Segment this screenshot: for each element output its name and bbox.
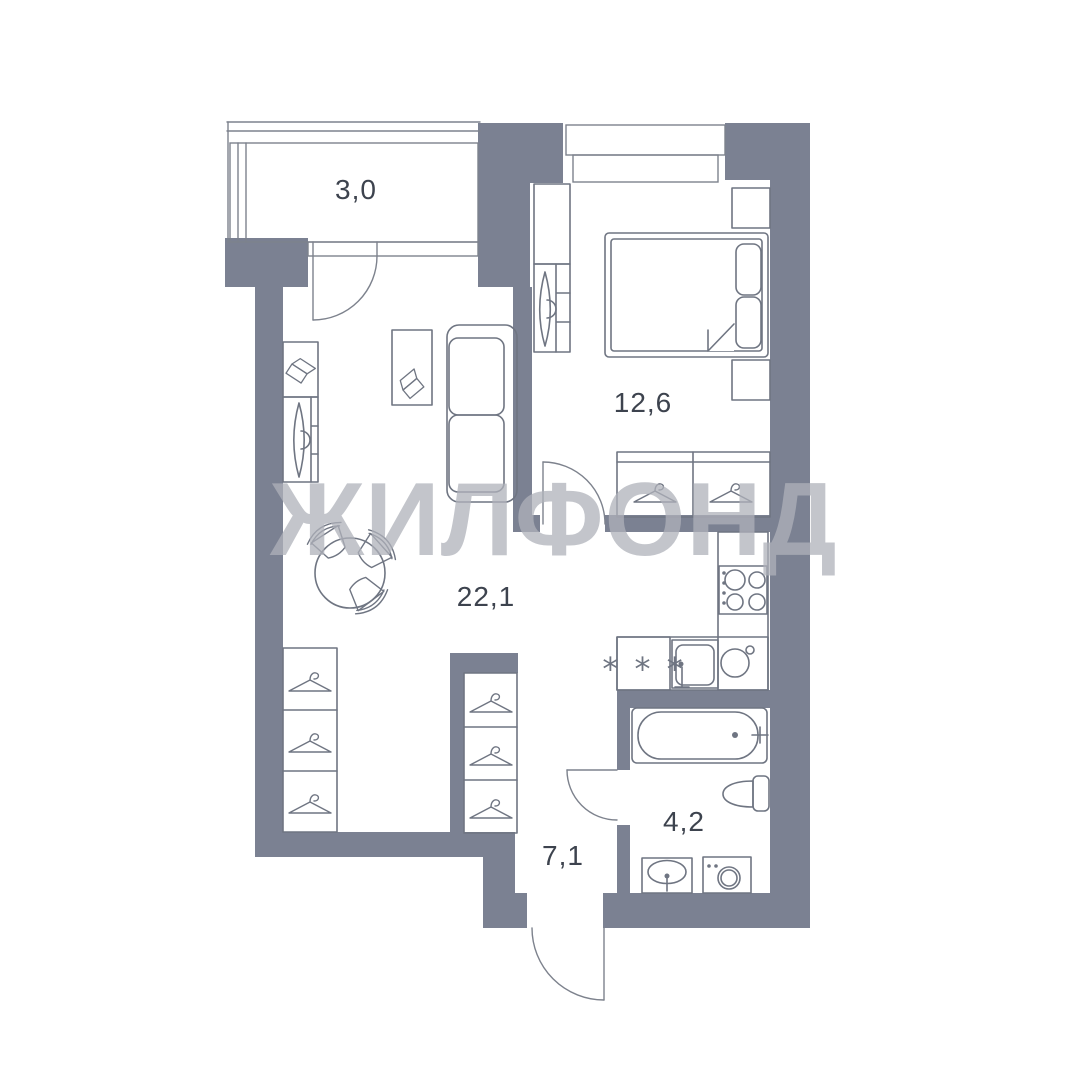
hanger-icon — [710, 484, 752, 502]
living-room-furniture — [283, 325, 517, 833]
hanger-icon — [470, 747, 512, 765]
chair — [350, 525, 400, 576]
wall-entrance-left — [483, 893, 527, 928]
kitchen-counter-right — [718, 532, 768, 690]
burner — [725, 570, 745, 590]
bedroom-area-label: 12,6 — [614, 387, 673, 419]
door-swing-arc — [532, 928, 604, 1000]
bedroom-closet — [617, 452, 770, 517]
tv-icon — [540, 272, 551, 346]
balcony-door — [313, 256, 377, 320]
bedroom-tv-dresser — [534, 264, 570, 352]
hanger-icon — [634, 484, 676, 502]
hanger-icon — [289, 734, 331, 752]
toilet-bowl — [723, 781, 753, 807]
tv-stand — [283, 397, 318, 482]
balcony-threshold — [308, 242, 478, 256]
floor-plan-drawing: * * * — [0, 0, 1080, 1080]
entrance-door — [532, 928, 604, 1000]
living-kitchen-area-label: 22,1 — [457, 581, 516, 613]
bed — [605, 233, 768, 357]
sofa-cushion — [449, 338, 504, 415]
bathtub — [632, 708, 768, 763]
hanger-icon — [470, 694, 512, 712]
bedroom-door — [543, 462, 605, 524]
laptop-icon — [397, 369, 427, 398]
floor-plan: * * * — [0, 0, 1080, 1080]
pillow — [736, 244, 761, 295]
bedroom-wardrobe-left — [534, 184, 570, 264]
fridge-snowflakes: * * * — [602, 650, 685, 688]
bath-faucet — [752, 727, 768, 743]
hanger-icon — [289, 795, 331, 813]
washing-machine — [703, 857, 751, 893]
wall-kitchen-bath-divider — [617, 690, 770, 708]
tv-icon — [294, 403, 305, 477]
toilet — [723, 776, 769, 811]
pillow — [736, 297, 761, 348]
wall-living-bottom — [255, 832, 515, 857]
bathroom-fixtures — [632, 708, 769, 893]
wall-hall-wardrobe-cap — [450, 653, 518, 673]
bathroom-area-label: 4,2 — [663, 806, 705, 838]
hanger-icon — [470, 800, 512, 818]
stove — [719, 566, 767, 614]
dining-set — [304, 517, 400, 619]
bathroom-door — [567, 770, 617, 820]
chair — [341, 570, 392, 619]
round-hob — [721, 646, 754, 677]
door-swing-arc — [313, 256, 377, 320]
burner — [727, 594, 743, 610]
kitchen: * * * — [602, 532, 768, 690]
laptop-icon — [286, 356, 315, 385]
fridge: * * * — [602, 637, 685, 690]
washbasin — [642, 858, 692, 893]
chair — [304, 517, 355, 565]
sofa-cushion — [449, 415, 504, 492]
wall-bath-left-upper — [617, 708, 630, 770]
sofa — [447, 325, 517, 502]
wall-balcony-left-block — [225, 238, 308, 287]
door-swing-arc — [567, 770, 617, 820]
door-swing-arc — [543, 462, 605, 524]
coffee-table — [392, 330, 432, 405]
wall-bottom-right — [603, 893, 810, 928]
bedroom-window — [566, 125, 725, 182]
nightstand-bottom — [732, 360, 770, 400]
hallway-wardrobe-column — [464, 673, 517, 833]
wall-left — [255, 287, 283, 832]
living-wardrobe-column — [283, 648, 337, 832]
wall-right — [770, 123, 810, 928]
burner — [749, 594, 765, 610]
burner — [749, 572, 765, 588]
hallway-area-label: 7,1 — [542, 840, 584, 872]
wall-bath-left-lower — [617, 825, 630, 893]
wall-balcony-junction-column — [478, 123, 530, 287]
hanger-icon — [289, 673, 331, 691]
nightstand-top — [732, 188, 770, 228]
wall-hall-wardrobe-side — [450, 653, 464, 832]
toilet-tank — [753, 776, 769, 811]
wall-divider-foot — [513, 515, 540, 532]
balcony-area-label: 3,0 — [335, 174, 377, 206]
desk — [283, 342, 318, 397]
